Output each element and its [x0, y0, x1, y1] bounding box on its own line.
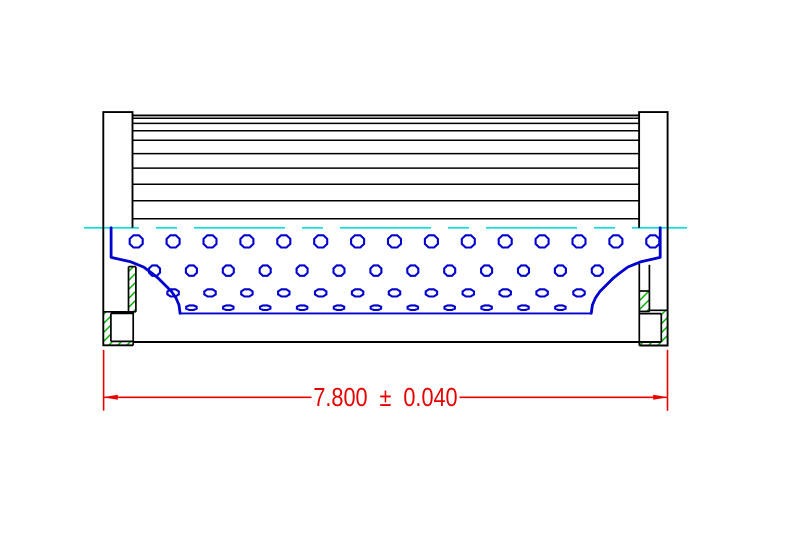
- svg-text:7.800 ± 0.040: 7.800 ± 0.040: [313, 384, 457, 412]
